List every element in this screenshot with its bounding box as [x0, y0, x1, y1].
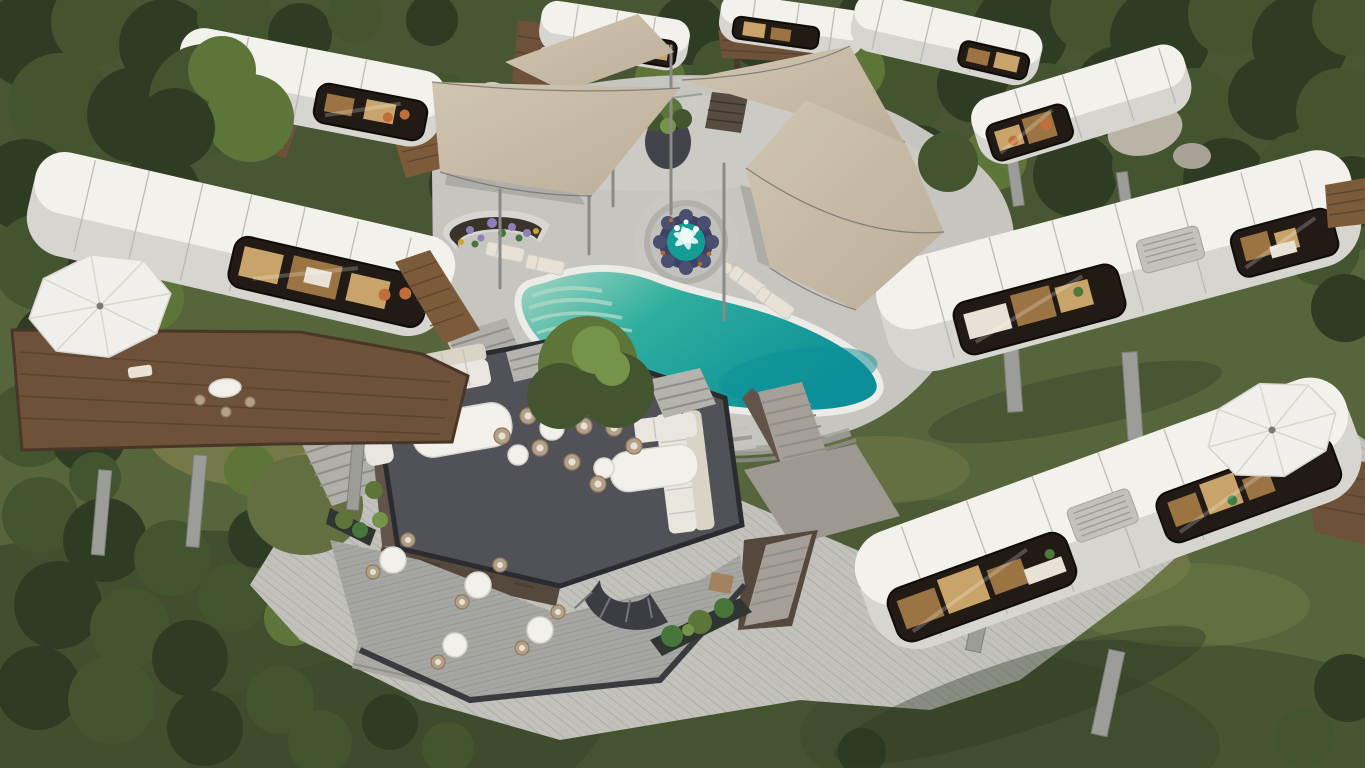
slat-fence-right [705, 92, 748, 133]
terrace-rock [708, 572, 734, 594]
boulder-small [1173, 143, 1211, 169]
aerial-resort-render [0, 0, 1365, 768]
render-canvas [0, 0, 1365, 768]
wood-steps-east [1325, 178, 1365, 228]
